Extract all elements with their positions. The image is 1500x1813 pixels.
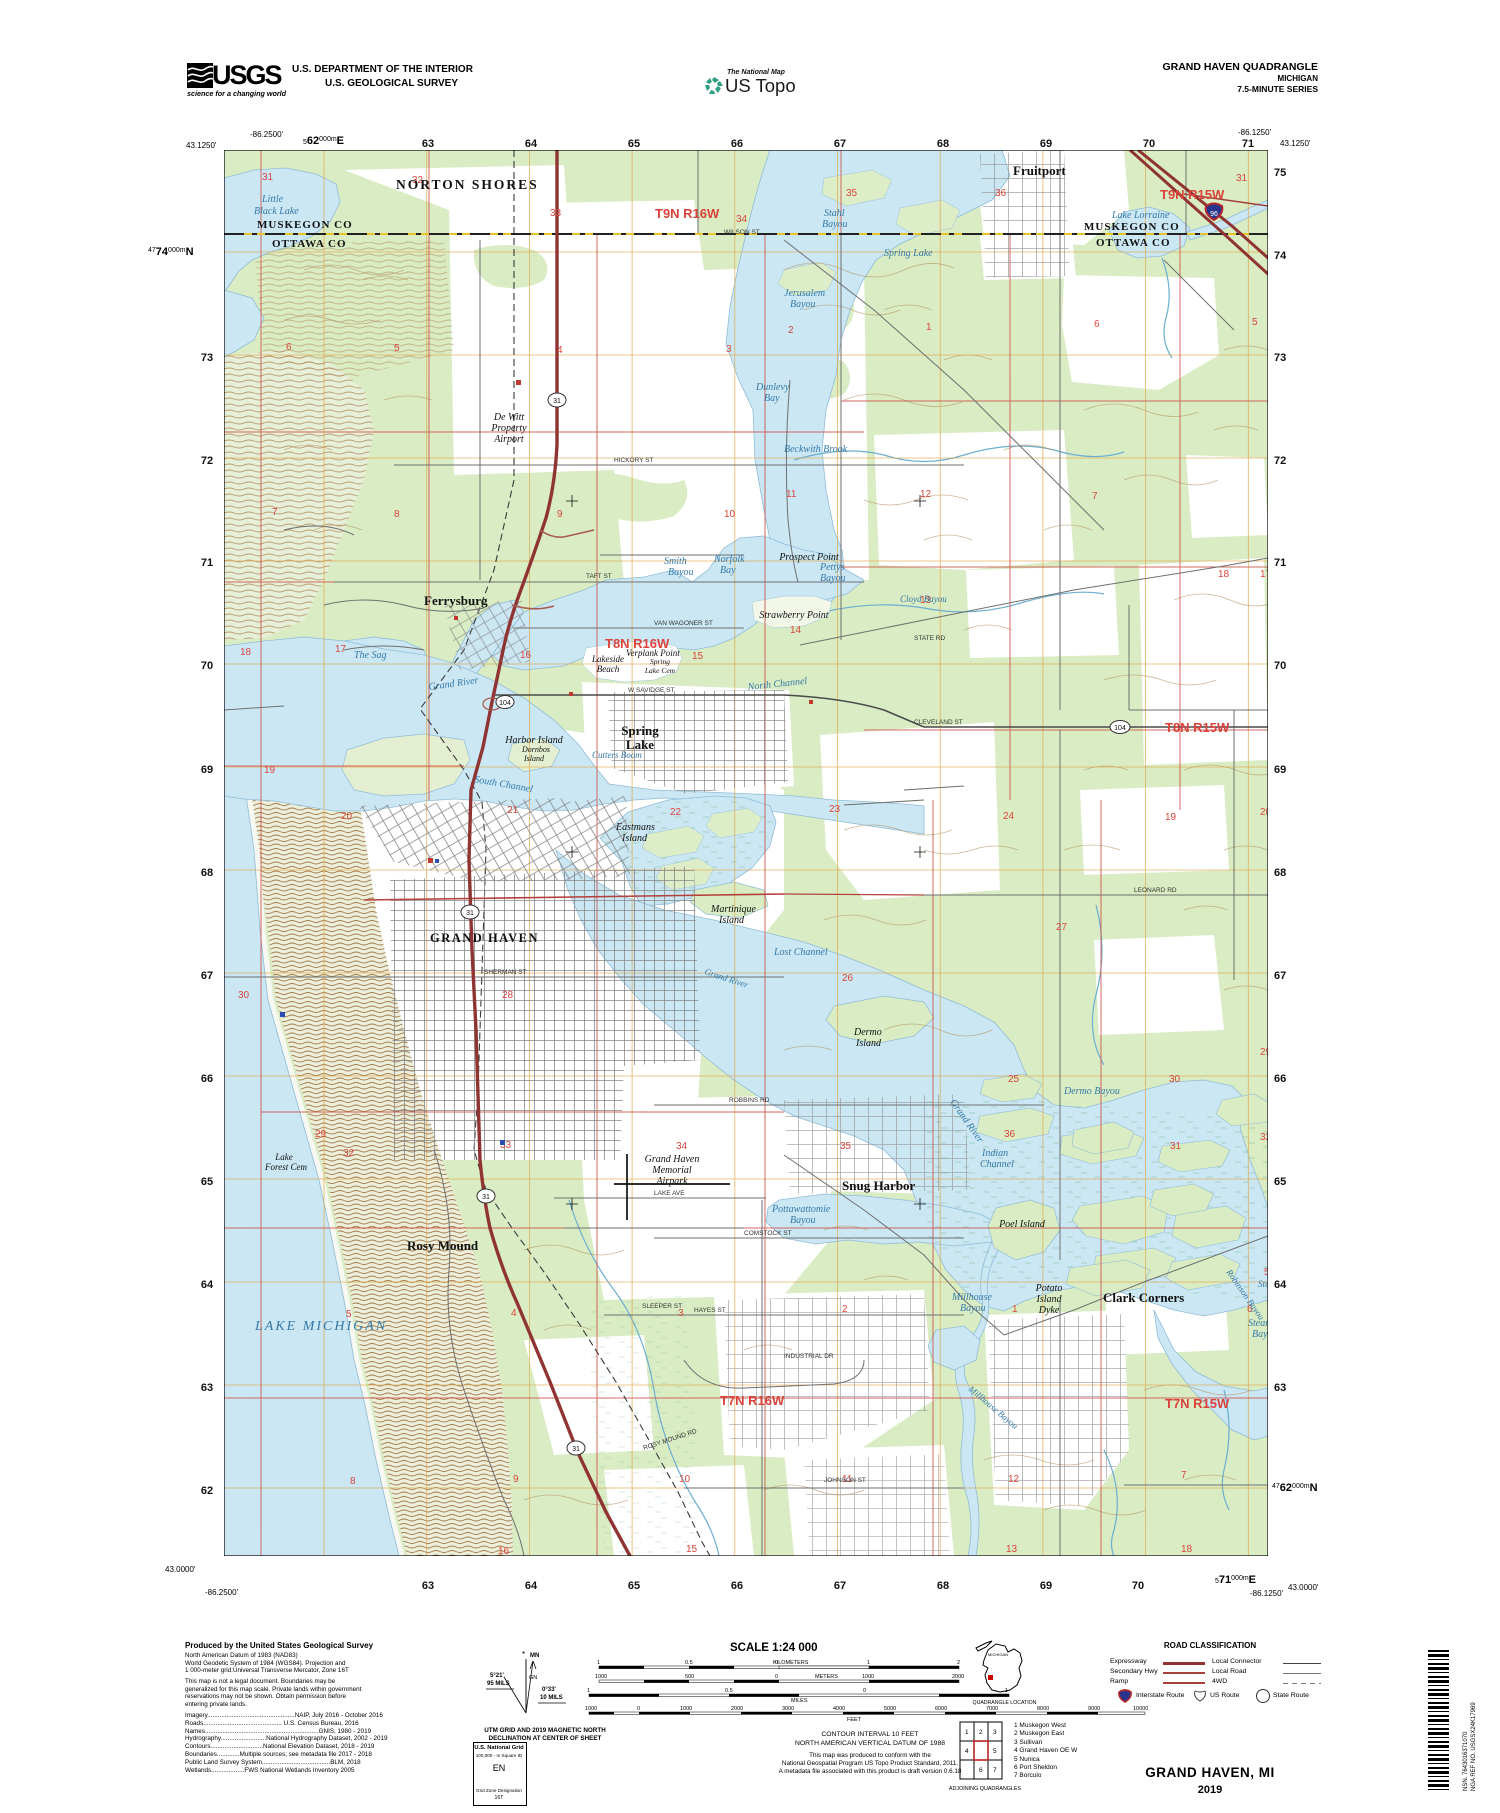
svg-text:Norfolk: Norfolk xyxy=(713,554,745,565)
svg-text:Bayou: Bayou xyxy=(820,573,846,584)
svg-text:T7N R16W: T7N R16W xyxy=(720,1393,785,1408)
svg-text:OTTAWA CO: OTTAWA CO xyxy=(1096,237,1171,249)
svg-text:Pottawattomie: Pottawattomie xyxy=(771,1204,831,1215)
svg-text:Dornbos: Dornbos xyxy=(521,745,550,754)
svg-text:Bay: Bay xyxy=(720,565,736,576)
svg-text:MUSKEGON CO: MUSKEGON CO xyxy=(257,219,353,231)
svg-text:FEET: FEET xyxy=(847,1717,862,1722)
svg-text:0: 0 xyxy=(863,1688,866,1694)
svg-text:Poel Island: Poel Island xyxy=(998,1219,1046,1230)
svg-text:17: 17 xyxy=(1260,569,1268,580)
svg-text:Bayou: Bayou xyxy=(1252,1329,1268,1340)
svg-text:32: 32 xyxy=(1260,1132,1268,1143)
svg-text:1000: 1000 xyxy=(585,1706,597,1712)
svg-text:Bayou: Bayou xyxy=(790,1215,816,1226)
svg-text:35: 35 xyxy=(840,1141,852,1152)
svg-text:1: 1 xyxy=(1012,1304,1018,1315)
svg-text:19: 19 xyxy=(1165,812,1177,823)
svg-text:Dermo: Dermo xyxy=(853,1027,882,1038)
svg-text:Indian: Indian xyxy=(981,1148,1008,1159)
svg-text:30: 30 xyxy=(238,990,250,1001)
svg-text:Island: Island xyxy=(855,1038,882,1049)
svg-text:2: 2 xyxy=(979,1729,983,1736)
svg-text:6: 6 xyxy=(979,1767,983,1774)
svg-text:18: 18 xyxy=(240,647,252,658)
svg-text:27: 27 xyxy=(1056,922,1068,933)
svg-text:T9N R16W: T9N R16W xyxy=(655,206,720,221)
svg-text:10: 10 xyxy=(679,1474,691,1485)
svg-text:28: 28 xyxy=(502,990,514,1001)
svg-text:500: 500 xyxy=(685,1674,694,1680)
svg-text:Bayou: Bayou xyxy=(822,219,848,230)
svg-text:JOHNSON ST: JOHNSON ST xyxy=(824,1477,866,1484)
svg-text:0: 0 xyxy=(775,1674,778,1680)
svg-text:14: 14 xyxy=(790,625,802,636)
svg-text:1000: 1000 xyxy=(680,1706,692,1712)
svg-text:5: 5 xyxy=(394,343,400,354)
svg-text:Grand Haven: Grand Haven xyxy=(645,1154,700,1165)
svg-text:33: 33 xyxy=(550,208,562,219)
svg-text:0: 0 xyxy=(637,1706,640,1712)
svg-text:23: 23 xyxy=(829,804,841,815)
svg-text:Clark Corners: Clark Corners xyxy=(1103,1290,1184,1305)
svg-text:7: 7 xyxy=(1092,491,1098,502)
svg-text:17: 17 xyxy=(335,644,347,655)
svg-text:9: 9 xyxy=(557,509,563,520)
svg-text:10 MILS: 10 MILS xyxy=(540,1695,563,1701)
svg-text:VAN WAGONER ST: VAN WAGONER ST xyxy=(654,620,713,627)
svg-text:20: 20 xyxy=(1260,807,1268,818)
svg-text:2: 2 xyxy=(788,325,794,336)
svg-text:Smith: Smith xyxy=(664,556,687,567)
svg-text:2000: 2000 xyxy=(952,1674,964,1680)
svg-text:De Witt: De Witt xyxy=(493,412,524,423)
svg-text:4: 4 xyxy=(511,1308,517,1319)
svg-text:36: 36 xyxy=(1004,1129,1016,1140)
svg-text:4000: 4000 xyxy=(833,1706,845,1712)
svg-text:31: 31 xyxy=(553,398,561,405)
svg-text:Island: Island xyxy=(718,915,745,926)
svg-text:Snug Harbor: Snug Harbor xyxy=(842,1178,916,1193)
svg-text:W SAVIDGE ST: W SAVIDGE ST xyxy=(628,687,674,694)
svg-text:12: 12 xyxy=(1008,1474,1020,1485)
svg-text:WILSON ST: WILSON ST xyxy=(724,229,760,236)
svg-text:Spring Lake: Spring Lake xyxy=(884,248,933,259)
svg-text:18: 18 xyxy=(1218,569,1230,580)
svg-text:104: 104 xyxy=(1114,725,1126,732)
svg-text:31: 31 xyxy=(1170,1141,1182,1152)
svg-text:Dyke: Dyke xyxy=(1038,1305,1060,1316)
svg-text:Beach: Beach xyxy=(597,664,620,674)
svg-text:1: 1 xyxy=(597,1660,600,1666)
svg-text:Lakeside: Lakeside xyxy=(591,654,624,664)
svg-text:1000: 1000 xyxy=(862,1674,874,1680)
svg-text:29: 29 xyxy=(1260,1047,1268,1058)
svg-text:5: 5 xyxy=(1252,317,1258,328)
svg-text:Ferrysburg: Ferrysburg xyxy=(424,593,488,608)
svg-text:Stearns Ct: Stearns Ct xyxy=(1258,1279,1268,1289)
svg-text:20: 20 xyxy=(341,811,353,822)
svg-text:1: 1 xyxy=(587,1688,590,1694)
svg-text:1000: 1000 xyxy=(595,1674,607,1680)
svg-text:7: 7 xyxy=(993,1767,997,1774)
svg-text:31: 31 xyxy=(482,1194,490,1201)
svg-text:CLEVELAND ST: CLEVELAND ST xyxy=(914,719,963,726)
svg-text:2: 2 xyxy=(842,1304,848,1315)
svg-text:6: 6 xyxy=(286,342,292,353)
svg-text:12: 12 xyxy=(920,489,932,500)
svg-text:30: 30 xyxy=(1169,1074,1181,1085)
svg-text:Dunlevy: Dunlevy xyxy=(755,382,790,393)
svg-text:Airport: Airport xyxy=(493,434,524,445)
svg-text:TAFT ST: TAFT ST xyxy=(586,573,612,580)
svg-text:MN: MN xyxy=(530,1653,539,1659)
svg-text:OTTAWA CO: OTTAWA CO xyxy=(272,238,347,250)
svg-text:Forest Cem: Forest Cem xyxy=(264,1162,307,1172)
svg-text:NORTON SHORES: NORTON SHORES xyxy=(396,177,539,192)
svg-text:8: 8 xyxy=(394,509,400,520)
svg-text:24: 24 xyxy=(1003,811,1015,822)
svg-text:25: 25 xyxy=(1008,1074,1020,1085)
svg-text:Pettys: Pettys xyxy=(819,562,845,573)
svg-text:Lake: Lake xyxy=(274,1152,293,1162)
svg-text:Spring: Spring xyxy=(621,723,659,738)
svg-text:Island: Island xyxy=(1036,1294,1063,1305)
svg-text:0°33': 0°33' xyxy=(542,1687,556,1693)
svg-text:Lake Cem: Lake Cem xyxy=(644,666,676,675)
svg-text:Channel: Channel xyxy=(980,1159,1014,1170)
svg-text:29: 29 xyxy=(315,1129,327,1140)
svg-text:4: 4 xyxy=(965,1748,969,1755)
svg-text:5°21': 5°21' xyxy=(490,1673,504,1679)
svg-text:Cloyd Bayou: Cloyd Bayou xyxy=(900,594,947,604)
svg-text:3: 3 xyxy=(726,344,732,355)
svg-text:7: 7 xyxy=(1181,1470,1187,1481)
svg-text:3: 3 xyxy=(993,1729,997,1736)
svg-text:Potato: Potato xyxy=(1035,1283,1063,1294)
svg-text:8: 8 xyxy=(350,1476,356,1487)
svg-text:2: 2 xyxy=(957,1660,960,1666)
svg-text:GRAND HAVEN: GRAND HAVEN xyxy=(430,931,539,945)
svg-text:Property: Property xyxy=(490,423,527,434)
svg-text:Dermo Bayou: Dermo Bayou xyxy=(1063,1086,1120,1097)
svg-text:32: 32 xyxy=(343,1148,355,1159)
svg-text:22: 22 xyxy=(670,807,682,818)
svg-text:Memorial: Memorial xyxy=(651,1165,692,1176)
svg-text:T7N R15W: T7N R15W xyxy=(1165,1396,1230,1411)
svg-text:0.5: 0.5 xyxy=(725,1688,733,1694)
svg-text:Jerusalem: Jerusalem xyxy=(784,288,825,299)
svg-text:5000: 5000 xyxy=(884,1706,896,1712)
svg-text:8000: 8000 xyxy=(1037,1706,1049,1712)
svg-text:LEONARD RD: LEONARD RD xyxy=(1134,887,1177,894)
svg-text:6000: 6000 xyxy=(935,1706,947,1712)
svg-text:Martinique: Martinique xyxy=(710,904,757,915)
svg-text:9: 9 xyxy=(513,1474,519,1485)
svg-text:Millhouse: Millhouse xyxy=(951,1292,993,1303)
svg-text:MILES: MILES xyxy=(791,1698,808,1704)
svg-text:Spring: Spring xyxy=(650,657,670,666)
svg-text:7: 7 xyxy=(272,507,278,518)
svg-text:0.5: 0.5 xyxy=(685,1660,693,1666)
svg-text:SLEEPER ST: SLEEPER ST xyxy=(642,1303,682,1310)
svg-text:35: 35 xyxy=(846,188,858,199)
svg-text:1: 1 xyxy=(867,1660,870,1666)
svg-text:21: 21 xyxy=(507,805,519,816)
svg-text:3000: 3000 xyxy=(782,1706,794,1712)
svg-text:T9N R15W: T9N R15W xyxy=(1160,187,1225,202)
svg-text:SHERMAN ST: SHERMAN ST xyxy=(484,969,527,976)
svg-text:Fruitport: Fruitport xyxy=(1013,163,1066,178)
svg-text:MUSKEGON CO: MUSKEGON CO xyxy=(1084,221,1180,233)
svg-text:Bayou: Bayou xyxy=(668,567,694,578)
svg-text:KILOMETERS: KILOMETERS xyxy=(773,1660,809,1666)
svg-text:Black Lake: Black Lake xyxy=(254,206,299,217)
svg-text:Eastmans: Eastmans xyxy=(615,822,655,833)
svg-text:Cutters Boom: Cutters Boom xyxy=(592,750,642,760)
svg-text:Bayou: Bayou xyxy=(960,1303,986,1314)
svg-text:9000: 9000 xyxy=(1088,1706,1100,1712)
svg-text:INDUSTRIAL DR: INDUSTRIAL DR xyxy=(784,1353,834,1360)
svg-text:4: 4 xyxy=(557,345,563,356)
svg-text:GN: GN xyxy=(529,1675,537,1681)
svg-text:ROBBINS RD: ROBBINS RD xyxy=(729,1097,770,1104)
svg-text:19: 19 xyxy=(264,765,276,776)
svg-text:31: 31 xyxy=(262,172,274,183)
svg-text:MICHIGAN: MICHIGAN xyxy=(988,1652,1008,1657)
svg-text:15: 15 xyxy=(686,1544,698,1555)
svg-text:2000: 2000 xyxy=(731,1706,743,1712)
svg-text:1: 1 xyxy=(965,1729,969,1736)
svg-text:10: 10 xyxy=(724,509,736,520)
svg-text:31: 31 xyxy=(466,910,474,917)
svg-text:LAKE AVE: LAKE AVE xyxy=(654,1190,685,1197)
svg-text:36: 36 xyxy=(995,188,1007,199)
svg-text:0: 0 xyxy=(775,1660,778,1666)
svg-text:COMSTOCK ST: COMSTOCK ST xyxy=(744,1230,792,1237)
svg-text:5: 5 xyxy=(993,1748,997,1755)
svg-text:Beckwith Brook: Beckwith Brook xyxy=(784,444,848,455)
svg-text:STATE RD: STATE RD xyxy=(914,635,945,642)
svg-text:15: 15 xyxy=(692,651,704,662)
svg-text:Strawberry Point: Strawberry Point xyxy=(759,610,828,621)
svg-text:T8N R15W: T8N R15W xyxy=(1165,720,1230,735)
svg-text:18: 18 xyxy=(1181,1544,1193,1555)
svg-text:7000: 7000 xyxy=(986,1706,998,1712)
svg-text:Bay: Bay xyxy=(764,393,780,404)
svg-text:104: 104 xyxy=(499,700,511,707)
svg-text:31: 31 xyxy=(1236,173,1248,184)
svg-text:Lake Lorraine: Lake Lorraine xyxy=(1111,210,1170,221)
svg-text:*: * xyxy=(522,1650,525,1659)
svg-text:Airpark: Airpark xyxy=(655,1176,688,1187)
svg-text:HICKORY ST: HICKORY ST xyxy=(614,457,654,464)
svg-text:Lost Channel: Lost Channel xyxy=(773,947,828,958)
svg-text:LAKE MICHIGAN: LAKE MICHIGAN xyxy=(254,1319,387,1334)
svg-text:16: 16 xyxy=(520,650,532,661)
svg-text:Island: Island xyxy=(523,754,545,763)
svg-text:METERS: METERS xyxy=(815,1674,838,1680)
svg-text:16: 16 xyxy=(498,1546,510,1556)
svg-text:96: 96 xyxy=(1210,211,1218,218)
svg-text:1: 1 xyxy=(926,322,932,333)
svg-text:26: 26 xyxy=(842,973,854,984)
svg-text:34: 34 xyxy=(676,1141,688,1152)
svg-text:The Sag: The Sag xyxy=(354,650,387,661)
svg-text:Little: Little xyxy=(261,194,284,205)
svg-text:13: 13 xyxy=(1006,1544,1018,1555)
svg-text:6: 6 xyxy=(1094,319,1100,330)
svg-text:Stahl: Stahl xyxy=(824,208,845,219)
svg-text:10000: 10000 xyxy=(1133,1706,1148,1712)
svg-text:31: 31 xyxy=(572,1446,580,1453)
svg-text:HAYES ST: HAYES ST xyxy=(694,1307,726,1314)
svg-text:95 MILS: 95 MILS xyxy=(487,1681,510,1687)
svg-text:Island: Island xyxy=(621,833,648,844)
svg-text:Rosy Mound: Rosy Mound xyxy=(407,1238,479,1253)
svg-text:11: 11 xyxy=(786,489,797,500)
svg-text:Stearns: Stearns xyxy=(1248,1318,1268,1329)
svg-text:34: 34 xyxy=(736,214,748,225)
svg-text:Bayou: Bayou xyxy=(790,299,816,310)
